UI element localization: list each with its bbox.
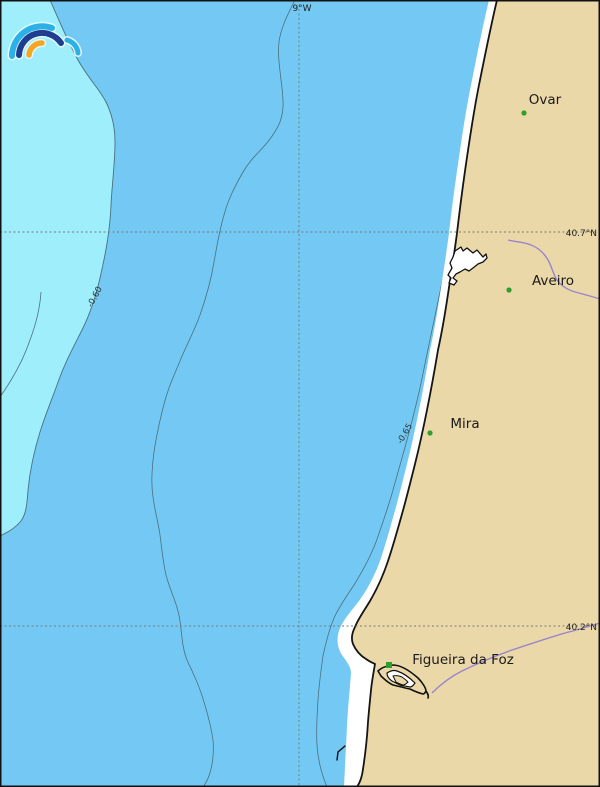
city-label-aveiro: Aveiro	[532, 273, 574, 289]
map-canvas: 9°W 40.7°N 40.2°N -0.60 -0.65 Ovar Aveir…	[0, 0, 600, 787]
city-marker-mira	[427, 430, 432, 435]
lat-label-40-7n: 40.7°N	[566, 229, 597, 239]
city-marker-aveiro	[506, 287, 511, 292]
lat-label-40-2n: 40.2°N	[566, 623, 597, 633]
city-marker-ovar	[521, 110, 526, 115]
lon-label-9w: 9°W	[292, 4, 311, 14]
city-label-figueira-da-foz: Figueira da Foz	[412, 652, 514, 668]
city-label-ovar: Ovar	[529, 92, 562, 108]
city-label-mira: Mira	[450, 416, 479, 432]
city-marker-figueira-da-foz	[386, 662, 392, 668]
